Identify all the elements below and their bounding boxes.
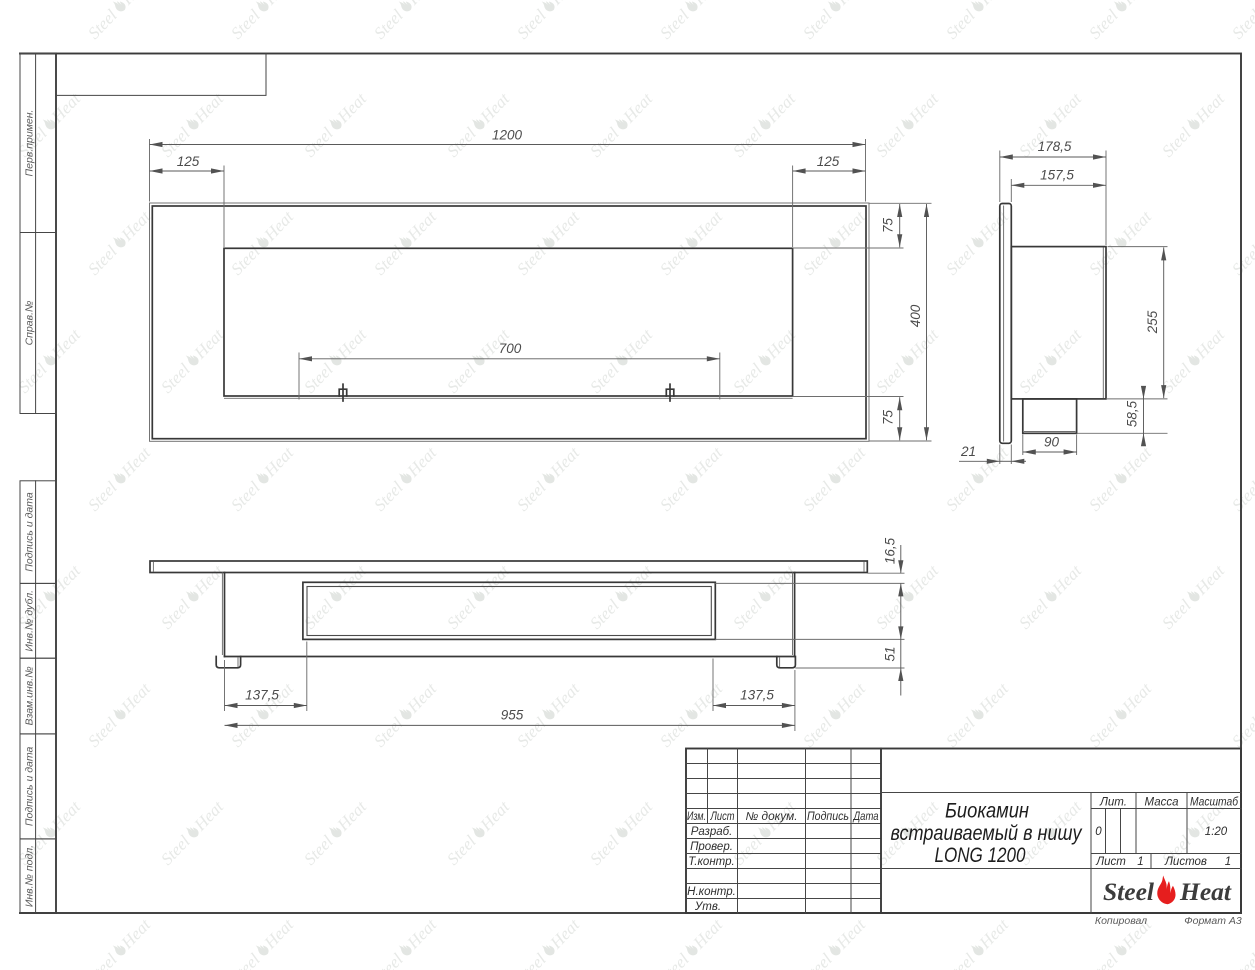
svg-text:Лист: Лист <box>1095 856 1126 868</box>
svg-text:0: 0 <box>1095 826 1102 838</box>
svg-text:21: 21 <box>960 444 976 459</box>
svg-text:Подпись и дата: Подпись и дата <box>24 492 36 572</box>
svg-text:1: 1 <box>1137 856 1143 868</box>
svg-text:Подпись: Подпись <box>807 811 849 823</box>
svg-text:178,5: 178,5 <box>1038 139 1072 154</box>
svg-text:Формат А3: Формат А3 <box>1184 915 1242 927</box>
svg-text:Лист: Лист <box>710 811 735 823</box>
svg-text:90: 90 <box>1044 435 1060 450</box>
svg-text:75: 75 <box>881 218 896 234</box>
svg-text:58,5: 58,5 <box>1125 400 1140 427</box>
svg-text:Провер.: Провер. <box>690 841 733 853</box>
svg-text:Взам.инв.№: Взам.инв.№ <box>24 666 36 725</box>
svg-text:700: 700 <box>499 341 522 356</box>
svg-text:Дата: Дата <box>852 811 879 823</box>
svg-text:Инв.№ дубл.: Инв.№ дубл. <box>24 590 36 652</box>
svg-text:Н.контр.: Н.контр. <box>687 886 736 898</box>
svg-text:LONG 1200: LONG 1200 <box>935 843 1026 867</box>
svg-text:1:20: 1:20 <box>1205 826 1228 838</box>
svg-text:Биокамин: Биокамин <box>945 799 1029 823</box>
svg-text:№ докум.: № докум. <box>746 811 798 823</box>
svg-text:Перв.примен.: Перв.примен. <box>24 110 36 177</box>
svg-text:Подпись и дата: Подпись и дата <box>24 747 36 827</box>
svg-text:157,5: 157,5 <box>1040 168 1074 183</box>
svg-text:Масса: Масса <box>1144 797 1178 809</box>
svg-text:16,5: 16,5 <box>883 537 898 564</box>
svg-text:137,5: 137,5 <box>740 688 774 703</box>
svg-text:Разраб.: Разраб. <box>691 826 733 838</box>
svg-text:125: 125 <box>177 154 200 169</box>
svg-text:Листов: Листов <box>1164 856 1207 868</box>
svg-text:Утв.: Утв. <box>694 901 721 913</box>
svg-text:Копировал: Копировал <box>1095 915 1147 927</box>
svg-text:Лит.: Лит. <box>1099 797 1127 809</box>
svg-text:137,5: 137,5 <box>245 688 279 703</box>
svg-text:1: 1 <box>1225 856 1231 868</box>
svg-text:Инв.№ подл.: Инв.№ подл. <box>24 845 36 907</box>
svg-text:встраиваемый в нишу: встраиваемый в нишу <box>891 821 1083 845</box>
svg-text:Масштаб: Масштаб <box>1190 797 1238 809</box>
svg-text:400: 400 <box>908 304 923 327</box>
svg-text:Т.контр.: Т.контр. <box>688 856 734 868</box>
svg-text:255: 255 <box>1145 310 1160 334</box>
svg-text:955: 955 <box>501 708 524 723</box>
svg-text:Справ.№: Справ.№ <box>24 301 36 346</box>
svg-text:Изм.: Изм. <box>687 811 706 823</box>
svg-text:51: 51 <box>883 646 898 661</box>
svg-text:Steel: Steel <box>1103 879 1154 906</box>
svg-text:1200: 1200 <box>492 128 523 143</box>
svg-text:125: 125 <box>817 154 840 169</box>
svg-text:75: 75 <box>881 410 896 426</box>
svg-text:Heat: Heat <box>1179 879 1232 906</box>
